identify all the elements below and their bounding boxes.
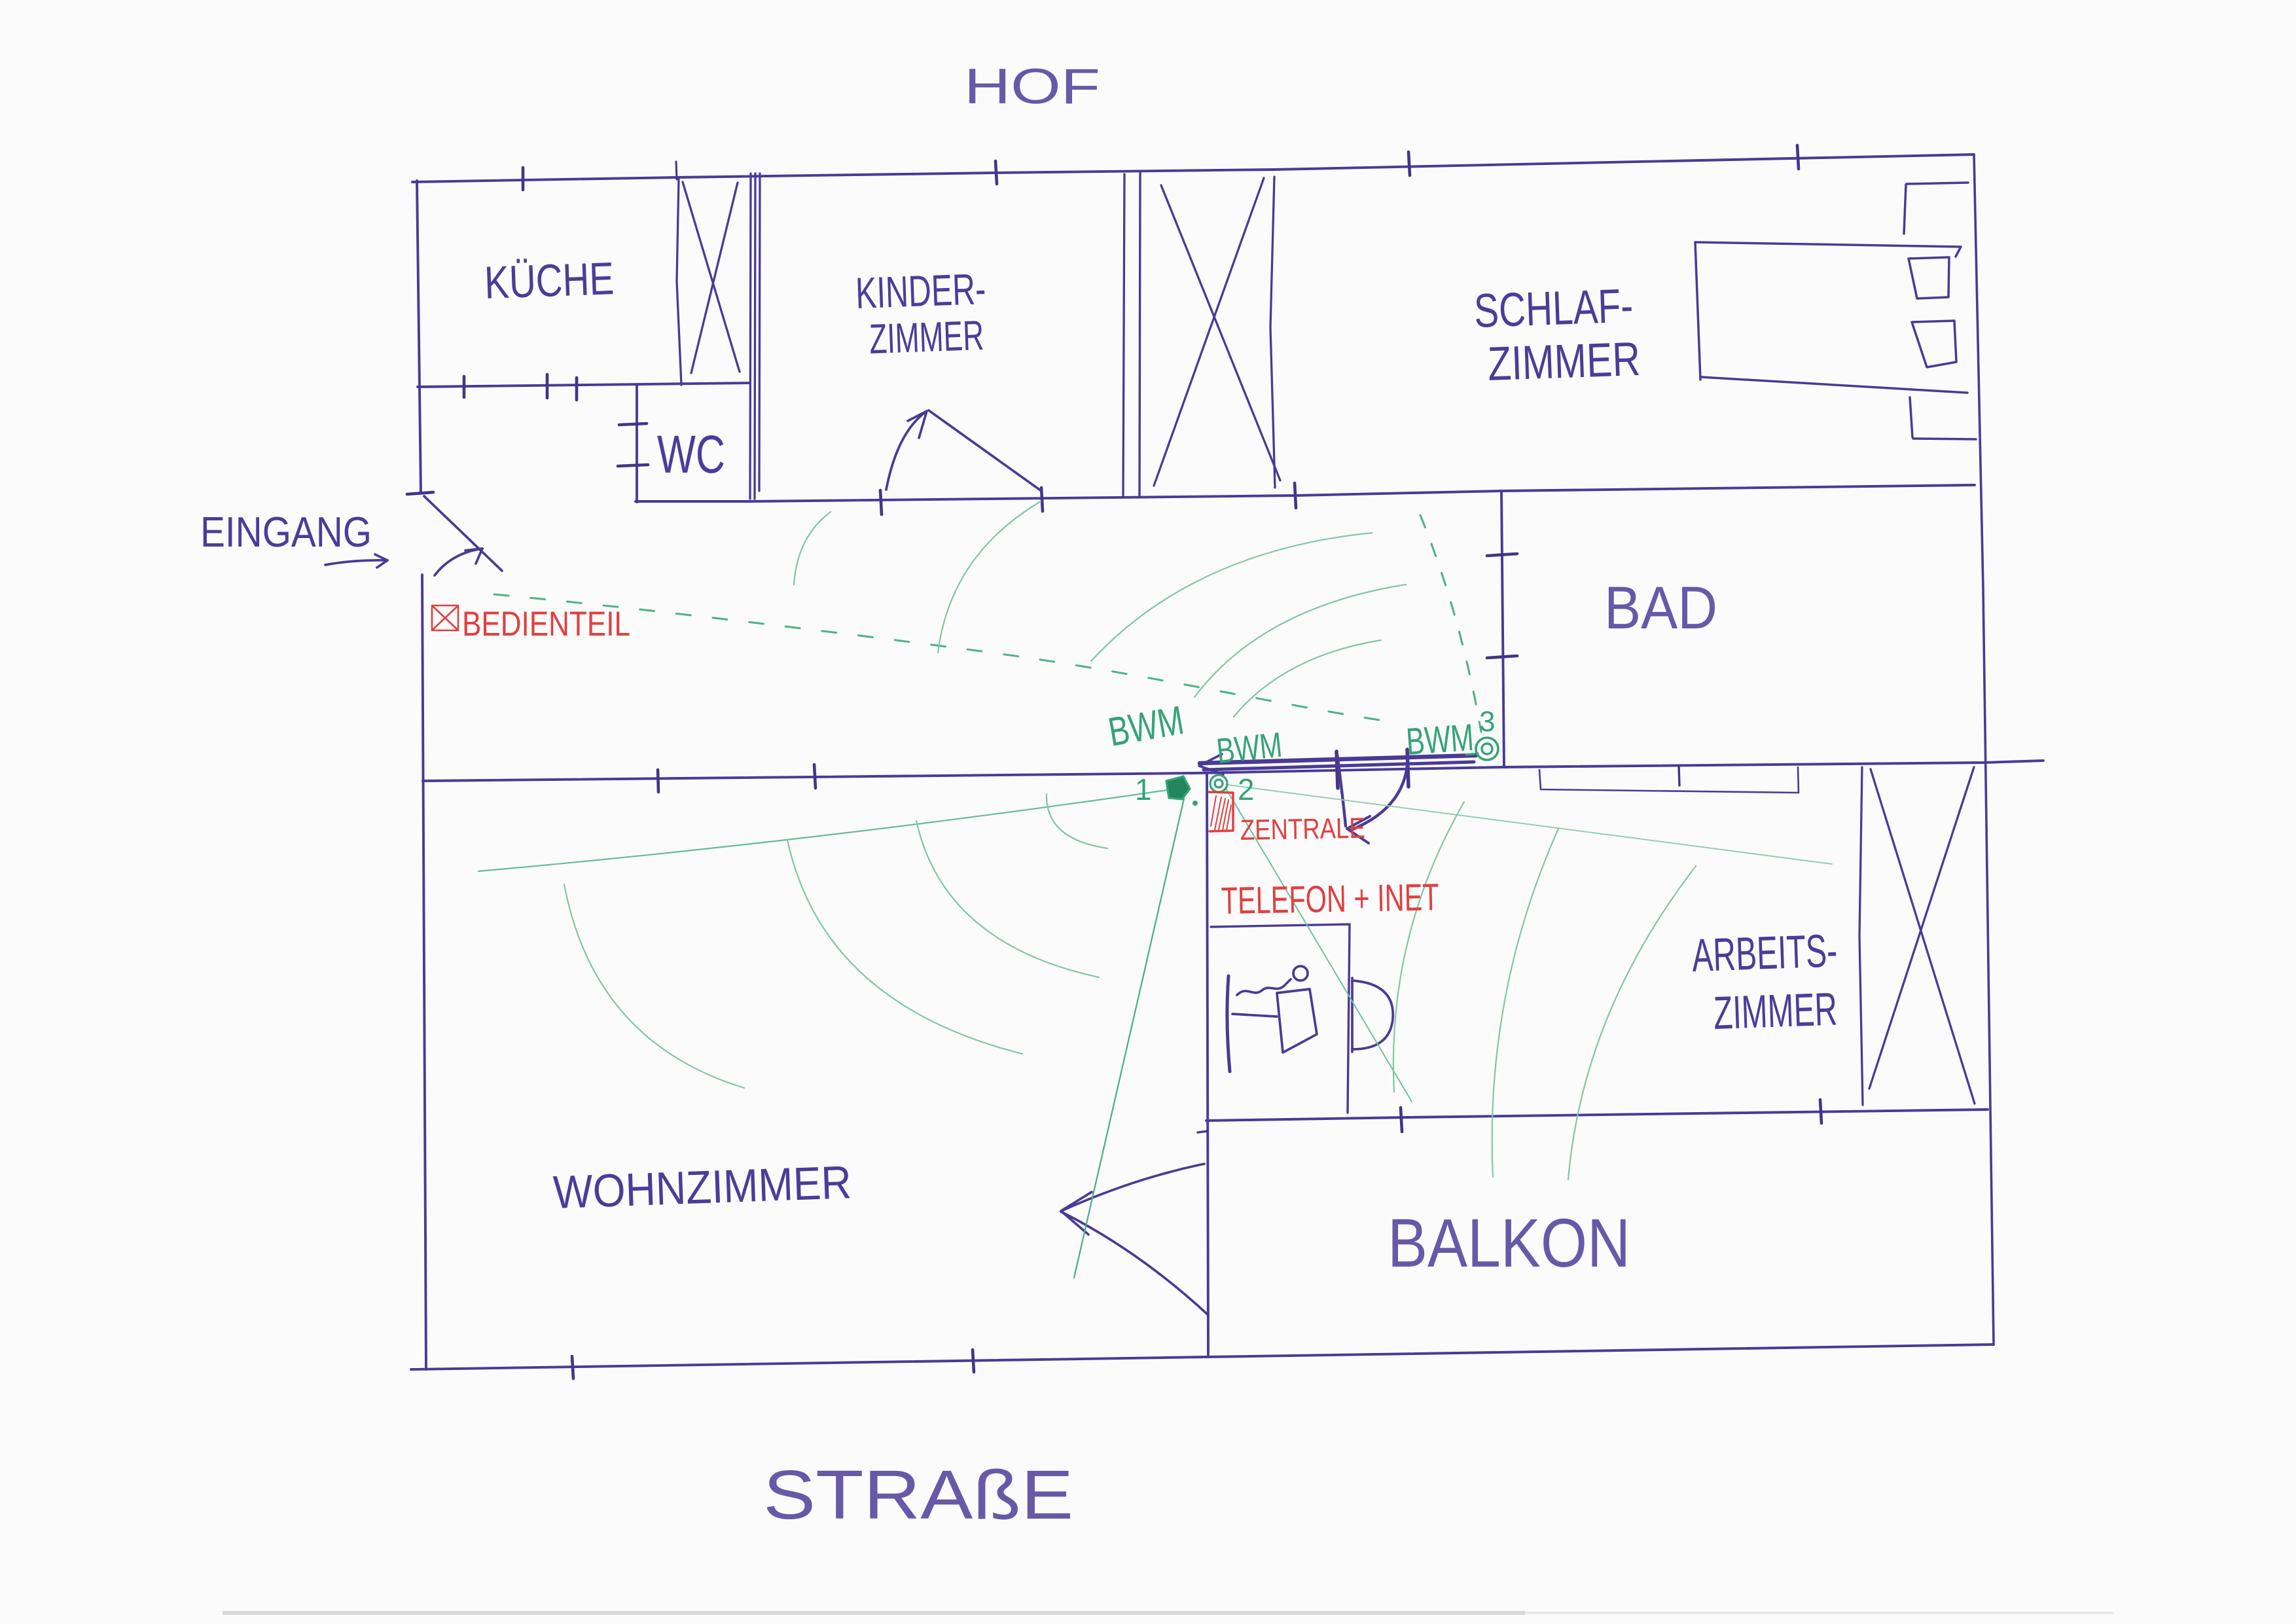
svg-text:ARBEITS-: ARBEITS- (1691, 925, 1839, 982)
svg-text:BWM: BWM (1215, 725, 1284, 771)
svg-text:3: 3 (1479, 706, 1495, 738)
svg-text:1: 1 (1135, 772, 1152, 806)
svg-text:KINDER-: KINDER- (855, 264, 986, 318)
svg-text:KÜCHE: KÜCHE (484, 253, 615, 308)
svg-text:BALKON: BALKON (1388, 1205, 1630, 1282)
svg-text:BWM: BWM (1105, 698, 1187, 755)
svg-text:ZIMMER: ZIMMER (869, 312, 984, 363)
svg-text:ZENTRALE: ZENTRALE (1240, 812, 1365, 846)
svg-text:HOF: HOF (964, 59, 1100, 115)
svg-text:ZIMMER: ZIMMER (1713, 983, 1839, 1039)
svg-text:BEDIENTEIL: BEDIENTEIL (462, 605, 630, 643)
svg-text:TELEFON + INET: TELEFON + INET (1221, 876, 1439, 922)
svg-text:BAD: BAD (1604, 575, 1717, 641)
svg-text:2: 2 (1238, 772, 1255, 806)
svg-text:EINGANG: EINGANG (200, 508, 372, 556)
svg-text:WOHNZIMMER: WOHNZIMMER (552, 1157, 852, 1219)
svg-text:SCHLAF-: SCHLAF- (1473, 280, 1634, 338)
svg-text:BWM: BWM (1405, 716, 1475, 763)
svg-text:STRAßE: STRAßE (763, 1456, 1073, 1534)
svg-text:ZIMMER: ZIMMER (1487, 333, 1641, 391)
svg-text:WC: WC (657, 425, 725, 484)
